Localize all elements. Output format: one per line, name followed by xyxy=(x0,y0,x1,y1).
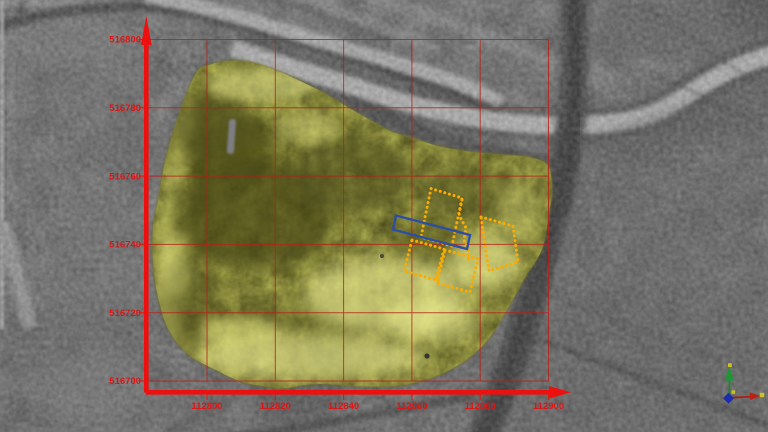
svg-text:112820: 112820 xyxy=(260,401,291,412)
svg-text:112880: 112880 xyxy=(465,401,496,412)
svg-text:516740: 516740 xyxy=(109,240,141,251)
svg-text:516760: 516760 xyxy=(109,171,141,182)
svg-text:112900: 112900 xyxy=(533,401,564,412)
svg-text:516780: 516780 xyxy=(109,103,141,114)
svg-text:112800: 112800 xyxy=(191,401,222,412)
svg-text:516700: 516700 xyxy=(109,376,141,387)
svg-text:112840: 112840 xyxy=(328,401,359,412)
svg-text:516800: 516800 xyxy=(109,35,141,46)
svg-text:112860: 112860 xyxy=(396,401,427,412)
svg-text:516720: 516720 xyxy=(109,308,141,319)
